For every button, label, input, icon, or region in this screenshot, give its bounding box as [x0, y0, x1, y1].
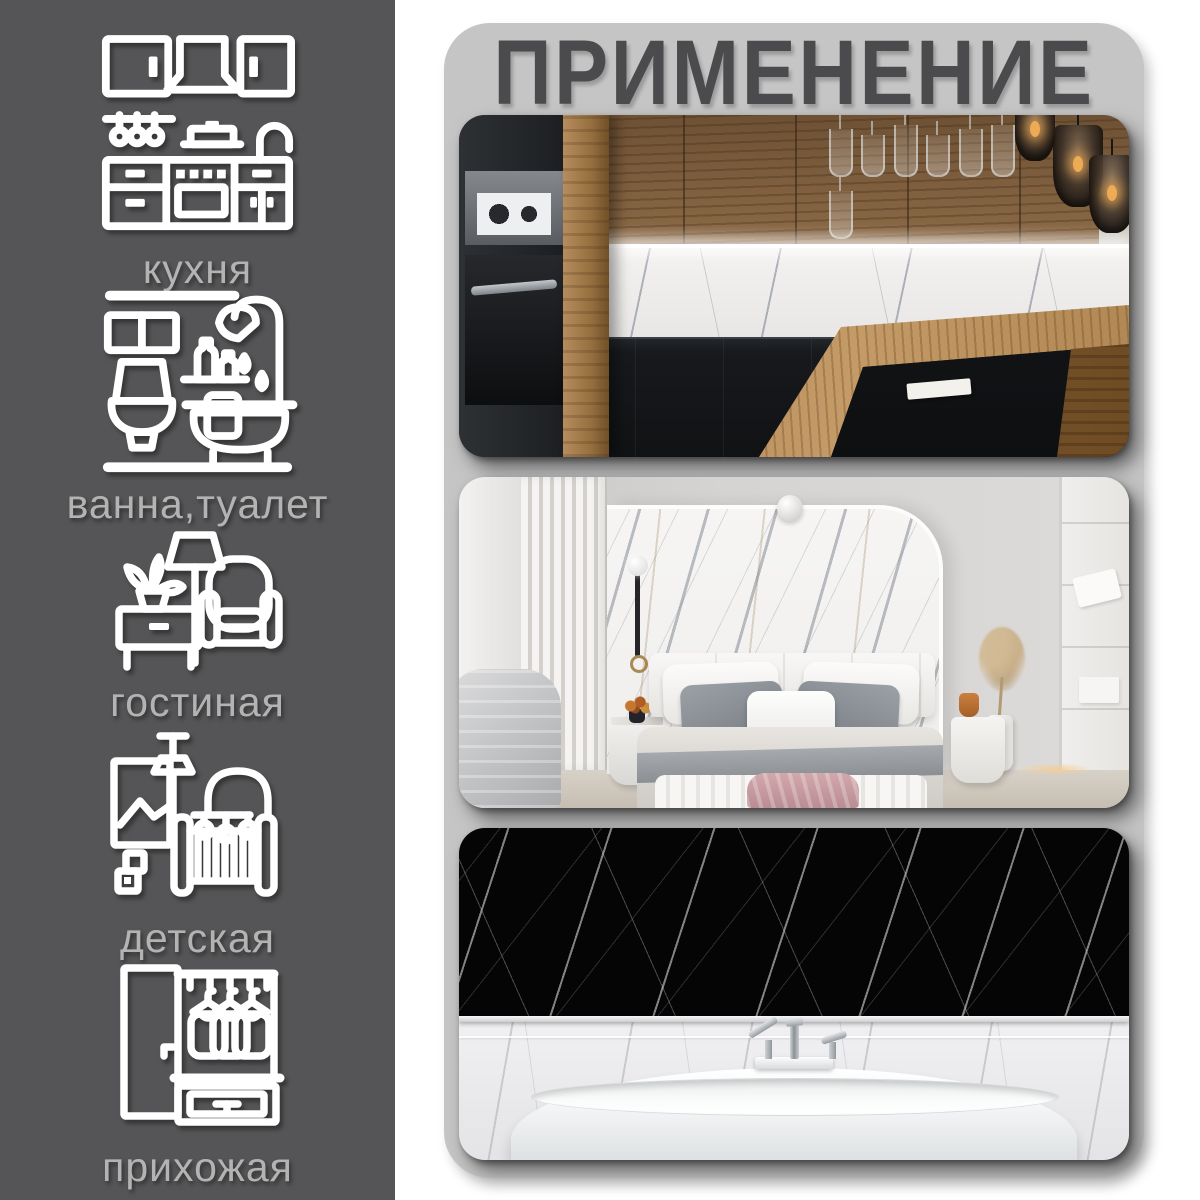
armchair-floor-lamp-icon	[113, 531, 283, 673]
sidebar-item-label: гостиная	[0, 679, 395, 725]
hallway-wardrobe-icon	[110, 960, 285, 1138]
application-panel: ПРИМЕНЕНИЕ	[444, 23, 1144, 1178]
floor-light-glow	[1015, 763, 1095, 775]
led-strip-light	[577, 244, 1129, 248]
sidebar-item-kitchen: кухня	[0, 33, 395, 292]
sidebar-item-living-room: гостиная	[0, 531, 395, 725]
wine-glass	[959, 129, 983, 177]
orange-vase	[959, 693, 979, 717]
lounge-chair	[459, 669, 561, 808]
room-types-sidebar: кухня ванна,туалет	[0, 0, 395, 1200]
wine-glass	[829, 191, 853, 239]
bath-toilet-icon	[100, 280, 295, 475]
sidebar-item-label: детская	[0, 915, 395, 961]
shelving-unit	[1059, 477, 1129, 770]
black-marble-wall	[459, 828, 1129, 1018]
pedestal-nightstand	[951, 717, 1005, 783]
faucet-spout	[790, 1022, 799, 1059]
pendant-lamp	[1015, 115, 1055, 161]
kitchen-set-icon	[100, 33, 295, 240]
pendant-ball-light	[777, 495, 803, 521]
oven-lower	[465, 255, 563, 405]
wine-glass	[829, 129, 853, 177]
faucet-lever-post	[765, 1040, 772, 1059]
bedroom-interior-photo	[459, 477, 1129, 808]
pink-throw	[747, 773, 859, 808]
sidebar-item-hallway: прихожая	[0, 960, 395, 1190]
pendant-lamp	[1089, 155, 1129, 233]
panel-title: ПРИМЕНЕНИЕ	[486, 23, 1102, 123]
wine-glass	[926, 135, 950, 177]
bathtub-rim	[531, 1078, 1059, 1116]
wine-glass	[991, 125, 1015, 177]
faucet-handle-post	[829, 1042, 836, 1059]
sidebar-item-bathroom: ванна,туалет	[0, 280, 395, 527]
hanging-wine-glasses	[827, 115, 1042, 187]
sidebar-item-label: ванна,туалет	[0, 481, 395, 527]
pendant-cord	[789, 477, 791, 497]
sidebar-item-nursery: детская	[0, 731, 395, 961]
shelf-object	[1079, 677, 1119, 703]
wall-sconce	[635, 573, 640, 657]
sidebar-item-label: прихожая	[0, 1144, 395, 1190]
baby-crib-icon	[110, 731, 285, 909]
wood-pillar	[563, 115, 609, 457]
wine-glass	[861, 135, 885, 177]
bathroom-interior-photo	[459, 828, 1129, 1160]
kitchen-interior-photo	[459, 115, 1129, 457]
oven-control-panel	[477, 193, 551, 235]
wine-glass	[894, 125, 918, 177]
